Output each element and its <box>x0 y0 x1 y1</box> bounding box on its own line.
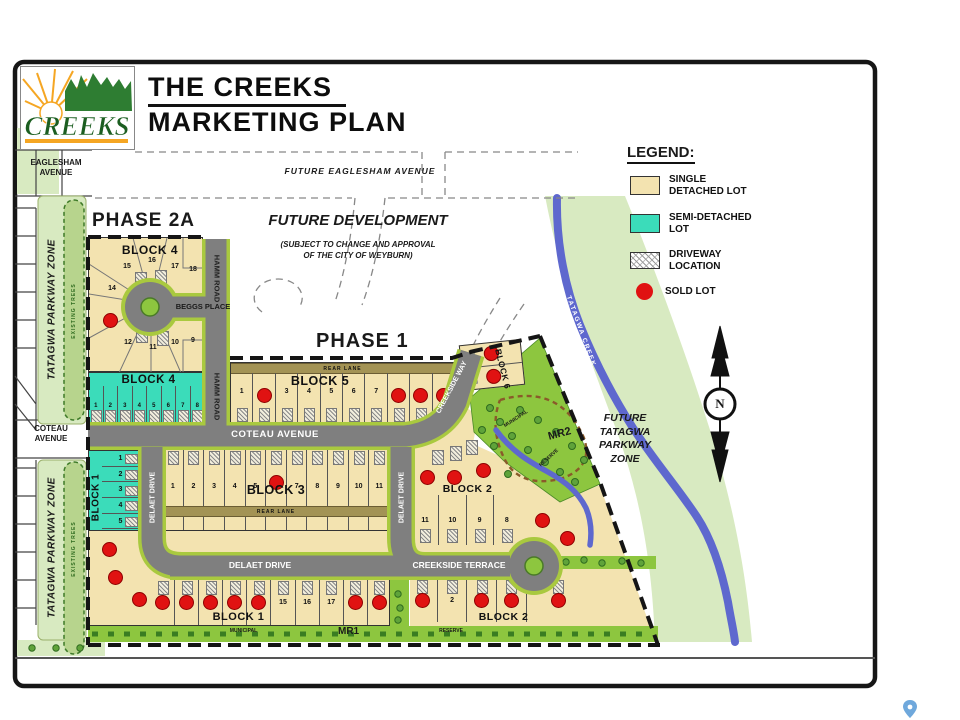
block-1-label: BLOCK 1 <box>196 611 281 623</box>
label-mr1-municipal: MUNICIPAL <box>216 628 271 634</box>
coteau-line2: AVENUE <box>16 434 86 444</box>
lot-number: 1 <box>94 403 97 409</box>
block-2-upper-label: BLOCK 2 <box>430 483 505 495</box>
lot-2: 2 <box>437 578 467 622</box>
lot-number: 15 <box>279 599 287 606</box>
lot-number: 7 <box>374 388 378 395</box>
label-mr1: MR1 <box>338 626 359 637</box>
creeks-logo-art: CREEKS <box>21 67 132 147</box>
lot-4: 4 <box>102 497 139 513</box>
lot-2: 2 <box>103 386 118 426</box>
lot-number: 10 <box>448 517 456 524</box>
compass-n-label: N <box>712 396 728 412</box>
lot-4: 4 <box>132 386 147 426</box>
lot-number: 10 <box>355 483 363 490</box>
lot-number: 2 <box>450 597 454 604</box>
block-2-diag-lots: 67 <box>520 498 590 558</box>
driveway-box <box>155 270 167 285</box>
lot-number: 16 <box>148 257 156 264</box>
lot-19: 19 <box>367 579 391 625</box>
lot <box>462 361 524 390</box>
label-beggs-place: BEGGS PLACE <box>165 302 241 311</box>
block-3-label: BLOCK 3 <box>230 483 322 497</box>
lot-number: 2 <box>109 403 112 409</box>
lot-number: 10 <box>171 339 179 346</box>
driveway-box <box>450 446 462 461</box>
lot-number: 3 <box>119 486 123 493</box>
label-existing-trees-upper: EXISTING TREES <box>71 271 77 351</box>
legend-item-single: SINGLEDETACHED LOT <box>630 174 747 197</box>
legend-single-line1: SINGLE <box>669 174 747 186</box>
lot-number: 14 <box>108 285 116 292</box>
lot-3: 3 <box>102 481 139 497</box>
future-zone-line3: PARKWAY <box>580 439 670 453</box>
lot-number: 5 <box>152 403 155 409</box>
driveway-swatch <box>630 252 660 269</box>
lot-number: 18 <box>189 266 197 273</box>
lot-5: 5 <box>245 449 266 506</box>
creeks-logo: CREEKS <box>20 66 135 150</box>
label-future-eaglesham: FUTURE EAGLESHAM AVENUE <box>240 166 480 176</box>
lot-1: 1 <box>231 373 252 424</box>
legend-driveway-line2: LOCATION <box>669 261 721 273</box>
lot-11: 11 <box>174 579 198 625</box>
future-zone-line1: FUTURE <box>580 412 670 426</box>
driveway-box <box>135 272 147 287</box>
lot-number: 11 <box>376 483 383 490</box>
label-mr1-reserve: RESERVE <box>428 628 474 634</box>
lot-14: 14 <box>475 464 491 477</box>
lot-18: 18 <box>343 579 367 625</box>
lot-11: 11 <box>412 495 438 545</box>
lot-number: 9 <box>191 337 195 344</box>
title-line-1: THE CREEKS <box>148 72 346 107</box>
title-line-2: MARKETING PLAN <box>148 107 407 138</box>
label-tatagwa-zone-upper: TATAGWA PARKWAY ZONE <box>47 230 58 390</box>
lot-number: 4 <box>119 502 123 509</box>
lot-8: 8 <box>190 386 205 426</box>
lot-number: 4 <box>307 388 311 395</box>
lot-13: 13 <box>102 314 118 327</box>
semi-lot-swatch <box>630 214 660 233</box>
lot-1: 1 <box>408 578 437 622</box>
lot-number: 11 <box>421 517 428 524</box>
legend-single-line2: DETACHED LOT <box>669 186 747 198</box>
lot-7: 7 <box>364 373 386 424</box>
rear-lane-bar-2: REAR LANE <box>163 506 389 517</box>
lot-number: 5 <box>119 518 123 525</box>
lot-12: 12 <box>120 336 136 349</box>
lot-14: 14 <box>104 282 120 295</box>
lot-7: 7 <box>286 449 307 506</box>
label-existing-trees-lower: EXISTING TREES <box>71 509 77 589</box>
legend-semi-line2: LOT <box>669 224 752 236</box>
lot-6: 6 <box>265 449 286 506</box>
label-phase-1: PHASE 1 <box>316 330 409 353</box>
lot-10: 10 <box>151 579 174 625</box>
block-2-lower-label: BLOCK 2 <box>466 611 541 623</box>
legend-item-semi: SEMI-DETACHEDLOT <box>630 212 752 235</box>
label-delaet-west: DELAET DRIVE <box>150 458 157 538</box>
block-1-semi-label: BLOCK 1 <box>91 458 102 538</box>
lot-9: 9 <box>327 449 348 506</box>
lot-10: 10 <box>348 449 369 506</box>
single-lot-swatch <box>630 176 660 195</box>
future-zone-line2: TATAGWA <box>580 426 670 440</box>
lot-1: 1 <box>89 386 103 426</box>
label-future-dev-sub1: (SUBJECT TO CHANGE AND APPROVAL <box>243 240 473 249</box>
label-future-dev-sub2: OF THE CITY OF WEYBURN) <box>243 251 473 260</box>
label-creekside-terrace: CREEKSIDE TERRACE <box>405 560 513 570</box>
lot-number: 16 <box>303 599 311 606</box>
lot-11: 11 <box>368 449 389 506</box>
lot-1: 1 <box>163 449 183 506</box>
legend-item-sold: SOLD LOT <box>630 283 716 300</box>
driveway-box <box>432 450 444 465</box>
label-coteau-avenue: COTEAU AVENUE <box>215 429 335 440</box>
legend-title: LEGEND: <box>627 144 695 164</box>
label-coteau-avenue-side: COTEAU AVENUE <box>16 424 86 445</box>
lot-17: 17 <box>319 579 343 625</box>
future-zone-line4: ZONE <box>580 453 670 467</box>
lot-number: 1 <box>119 455 123 462</box>
page-title: THE CREEKS MARKETING PLAN <box>148 72 407 138</box>
eaglesham-line2: AVENUE <box>18 168 94 178</box>
block-4-label: BLOCK 4 <box>110 243 190 257</box>
lot-number: 8 <box>196 403 199 409</box>
legend-semi-line1: SEMI-DETACHED <box>669 212 752 224</box>
lot-3: 3 <box>203 449 224 506</box>
lot-9: 9 <box>466 495 493 545</box>
lot-15: 15 <box>119 260 135 273</box>
lot-9: 9 <box>185 334 201 347</box>
lot-number: 17 <box>171 263 179 270</box>
lot-number: 17 <box>327 599 335 606</box>
label-delaet-bottom: DELAET DRIVE <box>215 560 305 570</box>
driveway-box <box>466 440 478 455</box>
legend-driveway-line1: DRIVEWAY <box>669 249 721 261</box>
label-eaglesham-avenue: EAGLESHAM AVENUE <box>18 158 94 179</box>
driveway-box <box>136 328 148 343</box>
lot-9: 9 <box>131 593 147 606</box>
block-5: REAR LANE 12345678910 <box>230 362 455 425</box>
lot-8: 8 <box>493 495 520 545</box>
lot-number: 4 <box>138 403 141 409</box>
lot-number: 3 <box>285 388 289 395</box>
lot-2: 2 <box>252 373 274 424</box>
rear-lane-label-2: REAR LANE <box>257 509 295 515</box>
lot-7: 7 <box>175 386 190 426</box>
lot-9: 9 <box>409 373 431 424</box>
legend-item-driveway: DRIVEWAYLOCATION <box>630 249 721 272</box>
label-future-development: FUTURE DEVELOPMENT <box>243 212 473 229</box>
lot-2: 2 <box>183 449 204 506</box>
lot-6: 6 <box>534 514 550 527</box>
coteau-line1: COTEAU <box>16 424 86 434</box>
lot-number: 1 <box>240 388 244 395</box>
label-hamm-road-lower: HAMM ROAD <box>213 357 222 437</box>
eaglesham-line1: EAGLESHAM <box>18 158 94 168</box>
lot-5: 5 <box>102 513 139 529</box>
lot-7: 7 <box>559 532 575 545</box>
lot-5: 5 <box>146 386 161 426</box>
lot-18: 18 <box>185 263 201 276</box>
lot-number: 3 <box>123 403 126 409</box>
lot-number: 5 <box>329 388 333 395</box>
driveway-box <box>157 331 169 346</box>
lot-number: 15 <box>123 263 131 270</box>
label-tatagwa-zone-lower: TATAGWA PARKWAY ZONE <box>47 468 58 628</box>
lot-number: 7 <box>181 403 184 409</box>
lot-number: 9 <box>478 517 482 524</box>
lot-2: 2 <box>102 466 139 482</box>
lot-4: 4 <box>224 449 245 506</box>
lot-3: 3 <box>117 386 132 426</box>
lot-number: 9 <box>336 483 340 490</box>
label-phase-2a: PHASE 2A <box>92 210 195 232</box>
logo-wordmark: CREEKS <box>24 111 129 141</box>
lot-17: 17 <box>167 260 183 273</box>
rear-lane-label: REAR LANE <box>323 366 361 372</box>
lot-number: 3 <box>212 483 216 490</box>
lot-number: 11 <box>149 344 156 351</box>
lot-number: 6 <box>352 388 356 395</box>
lot-number: 2 <box>192 483 196 490</box>
map-pin-icon <box>903 700 917 718</box>
lot-8: 8 <box>387 373 409 424</box>
sold-lot-swatch <box>636 283 653 300</box>
lot-10: 10 <box>167 336 183 349</box>
lot-number: 6 <box>167 403 170 409</box>
lot-10: 10 <box>438 495 465 545</box>
block-4-semi-label: BLOCK 4 <box>106 374 191 386</box>
lot-number: 2 <box>119 471 123 478</box>
lot-number: 12 <box>124 339 132 346</box>
lot-8: 8 <box>107 571 123 584</box>
block-5-label: BLOCK 5 <box>275 374 365 388</box>
lot-1: 1 <box>102 451 139 466</box>
lot-8: 8 <box>306 449 327 506</box>
label-delaet-east: DELAET DRIVE <box>399 458 406 538</box>
label-future-tatagwa-zone: FUTURE TATAGWA PARKWAY ZONE <box>580 412 670 467</box>
lot-number: 8 <box>505 517 509 524</box>
lot-16: 16 <box>295 579 319 625</box>
marketing-plan-page: 1516171814131211109 BLOCK 4 12345678 BLO… <box>0 0 960 720</box>
lot-7: 7 <box>101 543 117 556</box>
lot-6: 6 <box>161 386 176 426</box>
legend-sold-line1: SOLD LOT <box>665 286 716 298</box>
lot-number: 1 <box>171 483 175 490</box>
